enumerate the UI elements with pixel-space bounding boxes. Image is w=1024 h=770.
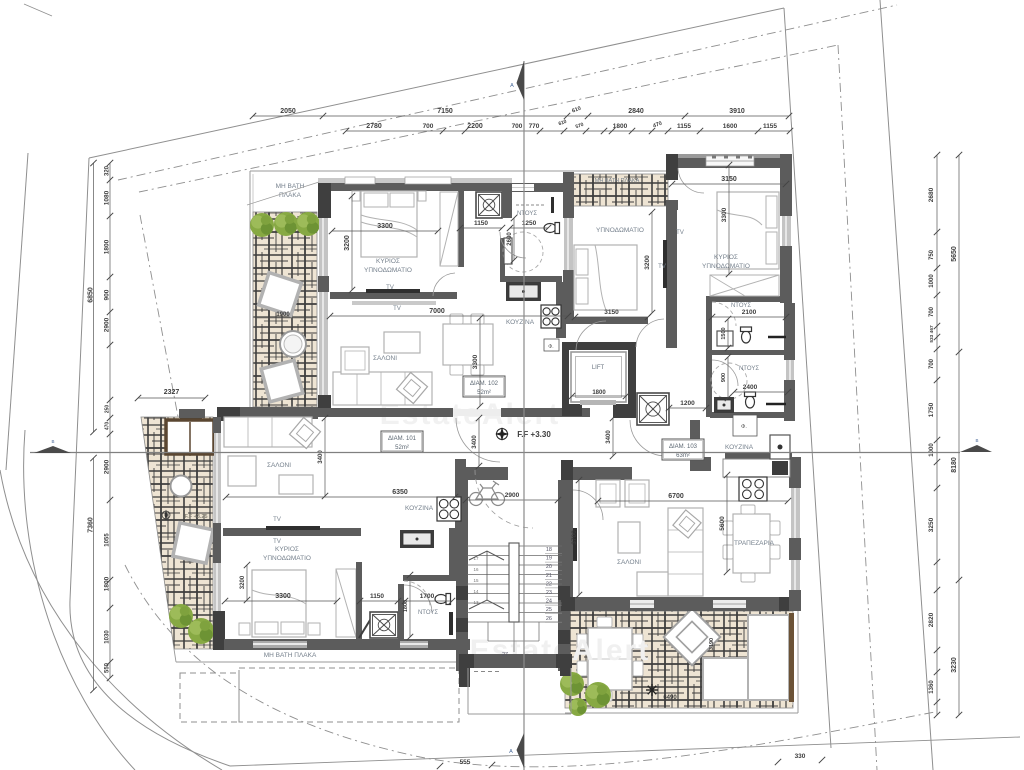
svg-text:7150: 7150 <box>437 108 453 115</box>
svg-text:ΤΡΑΠΕΖΑΡΙΑ: ΤΡΑΠΕΖΑΡΙΑ <box>734 540 775 547</box>
svg-text:1030: 1030 <box>105 630 111 644</box>
svg-text:TV: TV <box>676 230 684 236</box>
svg-text:TV: TV <box>393 306 401 312</box>
svg-text:22: 22 <box>546 581 552 587</box>
svg-text:ΔΙΑΜ. 101: ΔΙΑΜ. 101 <box>388 436 417 442</box>
svg-text:B: B <box>51 439 54 444</box>
svg-text:2780: 2780 <box>366 123 382 130</box>
svg-text:ΥΠΝΟΔΩΜΑΤΙΟ: ΥΠΝΟΔΩΜΑΤΙΟ <box>364 267 412 274</box>
svg-text:3200: 3200 <box>240 575 246 589</box>
svg-text:A: A <box>509 749 513 755</box>
svg-text:3400: 3400 <box>606 430 612 444</box>
svg-text:2400: 2400 <box>743 384 758 391</box>
svg-text:3230: 3230 <box>951 657 958 673</box>
svg-text:ΜΗ ΒΑΤΗ ΠΛΑΚΑ: ΜΗ ΒΑΤΗ ΠΛΑΚΑ <box>595 178 640 184</box>
svg-text:770: 770 <box>529 123 540 130</box>
svg-text:2050: 2050 <box>280 108 296 115</box>
svg-text:3300: 3300 <box>721 207 728 222</box>
svg-text:3300: 3300 <box>377 223 393 230</box>
svg-text:ΣΑΛΟΝΙ: ΣΑΛΟΝΙ <box>617 559 641 566</box>
svg-text:1150: 1150 <box>370 593 384 600</box>
svg-text:1055: 1055 <box>105 533 111 547</box>
svg-text:A: A <box>510 83 514 89</box>
svg-text:3910: 3910 <box>729 108 745 115</box>
svg-text:52m²: 52m² <box>395 445 409 451</box>
svg-text:250: 250 <box>105 405 111 414</box>
svg-text:TV: TV <box>273 517 281 523</box>
svg-text:700: 700 <box>929 358 935 369</box>
svg-text:1600: 1600 <box>723 123 738 130</box>
svg-text:1800: 1800 <box>104 576 111 591</box>
svg-text:F.F +3.25: F.F +3.25 <box>184 514 207 520</box>
svg-text:18: 18 <box>546 547 552 553</box>
svg-text:1750: 1750 <box>928 402 935 417</box>
svg-text:555: 555 <box>460 759 471 766</box>
svg-text:26: 26 <box>546 616 552 622</box>
svg-text:14: 14 <box>473 589 479 594</box>
svg-text:LIFT: LIFT <box>592 365 605 371</box>
svg-text:320: 320 <box>105 165 111 176</box>
svg-text:ΠΛΑΚΑ: ΠΛΑΚΑ <box>279 192 302 199</box>
svg-text:1500: 1500 <box>721 327 727 339</box>
svg-text:7000: 7000 <box>429 308 445 315</box>
svg-text:8180: 8180 <box>951 457 958 473</box>
svg-text:ΝΤΟΥΣ: ΝΤΟΥΣ <box>418 610 438 616</box>
svg-text:Φ.: Φ. <box>548 344 553 350</box>
svg-text:TV: TV <box>273 539 281 545</box>
svg-text:21: 21 <box>546 573 552 579</box>
svg-text:27: 27 <box>502 652 508 658</box>
svg-text:3190: 3190 <box>709 638 715 650</box>
svg-text:3700: 3700 <box>571 530 578 545</box>
svg-text:B: B <box>975 438 978 443</box>
svg-text:ΥΠΝΟΔΩΜΑΤΙΟ: ΥΠΝΟΔΩΜΑΤΙΟ <box>263 555 311 562</box>
svg-text:3300: 3300 <box>275 593 291 600</box>
svg-text:1155: 1155 <box>677 123 691 130</box>
svg-text:2840: 2840 <box>628 108 644 115</box>
svg-text:6350: 6350 <box>392 489 408 496</box>
svg-text:1360: 1360 <box>929 680 935 694</box>
svg-text:16: 16 <box>473 567 479 572</box>
svg-text:1000: 1000 <box>929 443 935 457</box>
svg-text:330: 330 <box>795 753 806 760</box>
svg-text:2900: 2900 <box>505 492 520 499</box>
svg-text:1700: 1700 <box>420 593 435 600</box>
svg-text:ΥΠΝΟΔΩΜΑΤΙΟ: ΥΠΝΟΔΩΜΑΤΙΟ <box>596 227 644 234</box>
svg-text:6700: 6700 <box>668 493 684 500</box>
svg-text:1150: 1150 <box>474 220 488 227</box>
svg-text:1155: 1155 <box>763 123 777 130</box>
svg-text:23: 23 <box>546 590 552 596</box>
svg-text:750: 750 <box>929 249 935 260</box>
svg-text:1200: 1200 <box>680 400 695 407</box>
svg-text:2200: 2200 <box>467 123 483 130</box>
svg-text:TV: TV <box>386 285 394 291</box>
svg-text:2900: 2900 <box>104 317 111 332</box>
svg-text:900: 900 <box>104 289 111 300</box>
svg-text:3150: 3150 <box>604 309 619 316</box>
svg-text:700: 700 <box>423 123 434 130</box>
svg-text:700: 700 <box>929 306 935 317</box>
svg-text:ΚΥΡΙΟΣ: ΚΥΡΙΟΣ <box>275 546 299 553</box>
svg-text:52m²: 52m² <box>477 390 491 396</box>
svg-text:2100: 2100 <box>742 309 757 316</box>
svg-text:3300: 3300 <box>472 354 479 369</box>
svg-text:550: 550 <box>105 662 111 673</box>
svg-text:1800: 1800 <box>403 600 409 612</box>
svg-text:TV: TV <box>658 264 666 270</box>
svg-text:ΚΟΥΖΙΝΑ: ΚΟΥΖΙΝΑ <box>725 444 754 451</box>
svg-text:ΣΑΛΟΝΙ: ΣΑΛΟΝΙ <box>373 355 397 362</box>
svg-text:700: 700 <box>512 123 523 130</box>
svg-text:3200: 3200 <box>344 235 351 251</box>
svg-text:63m²: 63m² <box>676 453 690 459</box>
svg-text:1000: 1000 <box>929 274 935 288</box>
svg-text:3200: 3200 <box>644 255 651 270</box>
svg-text:6850: 6850 <box>88 287 95 303</box>
svg-text:Φ.: Φ. <box>741 424 747 430</box>
svg-text:15: 15 <box>473 578 479 583</box>
svg-text:ΔΙΑΜ. 103: ΔΙΑΜ. 103 <box>669 444 698 450</box>
svg-text:533 467: 533 467 <box>929 325 935 343</box>
svg-text:3400: 3400 <box>472 435 478 449</box>
svg-text:20: 20 <box>546 564 552 570</box>
svg-text:F.F +3.30: F.F +3.30 <box>517 430 551 439</box>
svg-text:5650: 5650 <box>951 246 958 262</box>
svg-text:2680: 2680 <box>928 187 935 202</box>
svg-text:2820: 2820 <box>928 612 935 627</box>
svg-text:ΝΤΟΥΣ: ΝΤΟΥΣ <box>517 211 537 217</box>
svg-text:24: 24 <box>546 599 552 605</box>
svg-text:ΥΠΝΟΔΩΜΑΤΙΟ: ΥΠΝΟΔΩΜΑΤΙΟ <box>702 263 750 270</box>
svg-text:25: 25 <box>546 607 552 613</box>
svg-text:1080: 1080 <box>104 190 111 205</box>
svg-text:3400: 3400 <box>318 450 324 464</box>
svg-text:1800: 1800 <box>613 123 628 130</box>
svg-text:7360: 7360 <box>88 517 95 533</box>
svg-text:5600: 5600 <box>719 516 726 531</box>
svg-text:ΚΥΡΙΟΣ: ΚΥΡΙΟΣ <box>714 254 738 261</box>
svg-text:6490: 6490 <box>663 695 677 701</box>
svg-text:3250: 3250 <box>928 517 935 532</box>
svg-text:ΝΤΟΥΣ: ΝΤΟΥΣ <box>739 366 759 372</box>
svg-text:ΚΟΥΖΙΝΑ: ΚΟΥΖΙΝΑ <box>506 319 535 326</box>
svg-text:ΜΗ ΒΑΤΗ: ΜΗ ΒΑΤΗ <box>276 183 305 190</box>
svg-text:ΔΙΑΜ. 102: ΔΙΑΜ. 102 <box>470 381 499 387</box>
svg-text:19: 19 <box>546 556 552 562</box>
svg-text:ΚΟΥΖΙΝΑ: ΚΟΥΖΙΝΑ <box>405 505 434 512</box>
svg-text:ΜΗ ΒΑΤΗ ΠΛΑΚΑ: ΜΗ ΒΑΤΗ ΠΛΑΚΑ <box>264 652 317 659</box>
svg-text:ΚΥΡΙΟΣ: ΚΥΡΙΟΣ <box>376 258 400 265</box>
svg-text:2600: 2600 <box>507 232 513 246</box>
svg-text:470: 470 <box>105 422 111 431</box>
svg-text:2327: 2327 <box>164 389 180 396</box>
svg-text:1800: 1800 <box>104 239 111 254</box>
svg-text:1800: 1800 <box>592 390 606 396</box>
svg-text:2900: 2900 <box>104 459 111 474</box>
svg-text:900: 900 <box>721 373 727 382</box>
svg-text:1900: 1900 <box>276 312 290 318</box>
svg-text:ΣΑΛΟΝΙ: ΣΑΛΟΝΙ <box>267 462 291 469</box>
